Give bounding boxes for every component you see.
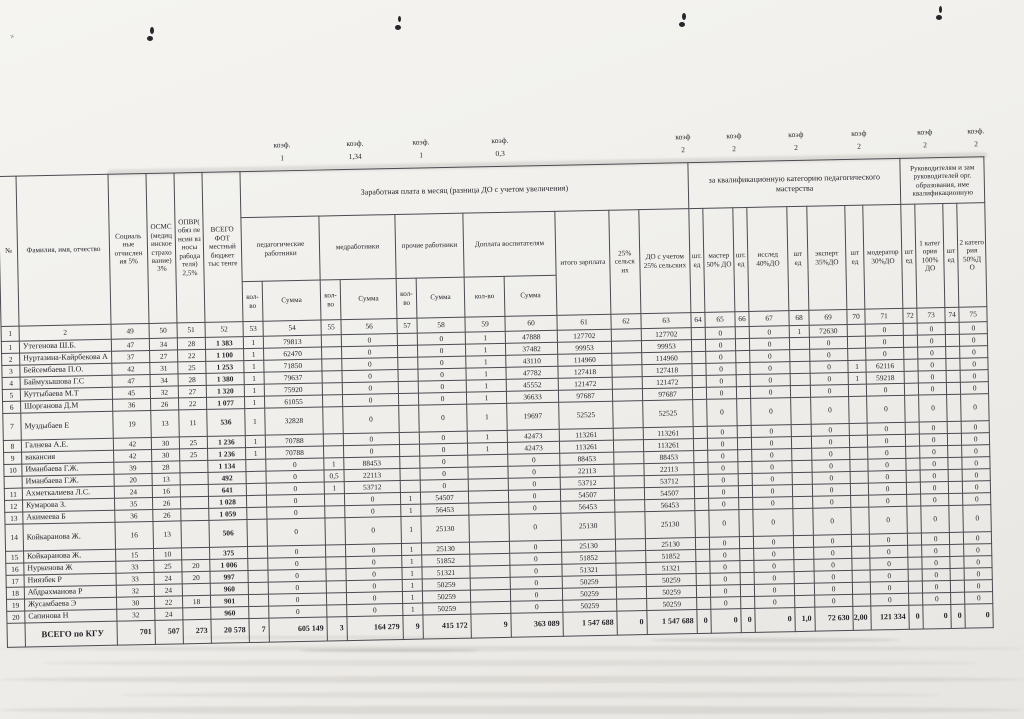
value-cell: 415 172 (423, 614, 471, 639)
value-cell: 0 (709, 498, 739, 511)
value-cell (945, 322, 959, 334)
value-cell (180, 472, 208, 485)
value-cell: 0 (962, 433, 990, 446)
value-cell (326, 581, 346, 593)
value-cell (792, 460, 812, 472)
value-cell (849, 396, 868, 423)
value-cell: 0 (869, 533, 907, 546)
value-cell (947, 421, 961, 433)
value-cell (399, 444, 419, 456)
scan-streak (0, 706, 1024, 714)
header-sht: шт ед (787, 206, 809, 310)
value-cell: 22 (178, 349, 206, 362)
name-cell: Койкаранова Ж. (23, 522, 116, 551)
value-cell: 0 (922, 544, 950, 557)
value-cell: 0 (617, 611, 647, 636)
column-number: 67 (749, 311, 789, 327)
value-cell: 16 (6, 563, 24, 575)
value-cell: 0,5 (324, 470, 344, 482)
value-cell (399, 405, 420, 432)
value-cell (246, 483, 266, 495)
value-cell: 42 (112, 362, 150, 375)
header-fio: Фамилия, имя, отчество (16, 174, 111, 326)
value-cell: 0 (711, 609, 741, 634)
value-cell: 24 (155, 608, 183, 621)
value-cell (247, 519, 268, 546)
value-cell: 0 (510, 564, 562, 577)
value-cell: 0 (420, 479, 468, 492)
value-cell: 1 (324, 482, 344, 494)
value-cell: 1 (467, 403, 508, 431)
value-cell: 0 (960, 358, 988, 371)
value-cell: 0 (961, 394, 990, 422)
value-cell: 0 (343, 405, 400, 433)
value-cell (791, 424, 811, 436)
value-cell (246, 471, 266, 483)
value-cell (469, 541, 509, 554)
header-vospit: Доплата воспитателям (463, 211, 556, 277)
value-cell: 0 (751, 425, 791, 438)
value-cell: 0 (920, 469, 948, 482)
value-cell (692, 387, 706, 399)
value-cell: 7 (249, 618, 269, 642)
value-cell (468, 454, 508, 467)
value-cell: 121 334 (871, 605, 910, 630)
value-cell: 32 (117, 608, 155, 621)
value-cell: 0 (964, 580, 992, 593)
value-cell: 51321 (422, 566, 470, 579)
value-cell: 0 (869, 494, 907, 507)
value-cell: 1 (848, 372, 866, 384)
value-cell: 33 (116, 560, 154, 573)
value-cell: 1 253 (206, 361, 244, 374)
value-cell: 0 (710, 561, 740, 574)
value-cell: 99953 (557, 341, 611, 354)
value-cell (614, 488, 644, 501)
value-cell: 7 (3, 413, 22, 440)
value-cell: 0 (341, 334, 397, 347)
value-cell (904, 335, 918, 347)
value-cell (946, 382, 960, 394)
value-cell (249, 606, 269, 618)
value-cell: 54507 (644, 487, 694, 500)
value-cell: 127702 (641, 328, 691, 341)
value-cell (400, 456, 420, 468)
value-cell: 27 (178, 385, 206, 398)
value-cell: 0 (708, 474, 738, 487)
value-cell (692, 375, 706, 387)
value-cell: 0 (750, 350, 790, 363)
header-med: медработники (319, 215, 396, 281)
value-cell: 0 (867, 434, 905, 447)
value-cell: 25130 (645, 511, 696, 539)
value-cell: 0 (755, 608, 795, 633)
value-cell (736, 362, 750, 374)
header-sht: шт ед (845, 205, 865, 309)
value-cell: 25 (180, 448, 208, 461)
value-cell: 1 (467, 442, 507, 455)
value-cell: 0 (751, 437, 791, 450)
value-cell (469, 502, 509, 515)
value-cell: 50259 (422, 578, 470, 591)
value-cell: 0 (811, 423, 849, 436)
scan-streak (120, 692, 940, 698)
header-moderator: модератор 30%ДО (863, 204, 903, 309)
value-cell (398, 357, 418, 369)
value-cell: 0 (509, 513, 562, 541)
value-cell (906, 434, 920, 446)
value-cell (794, 547, 814, 559)
value-cell (326, 569, 346, 581)
value-cell: 1 (402, 579, 422, 591)
value-cell (696, 561, 710, 573)
value-cell (849, 435, 867, 447)
value-cell (790, 373, 810, 385)
value-cell: 10 (154, 548, 182, 561)
value-cell: 127702 (557, 329, 611, 342)
column-number: 51 (177, 322, 205, 338)
header-social: Социаль ные отчислен ия 5% (108, 174, 149, 325)
header-kolvo: кол-во (320, 280, 341, 320)
value-cell (614, 464, 644, 477)
value-cell (325, 545, 345, 557)
value-cell: 32 (150, 386, 178, 399)
value-cell: 42473 (507, 429, 559, 442)
value-cell: 0 (420, 467, 468, 480)
value-cell (951, 592, 965, 604)
value-cell: 5 (2, 389, 20, 401)
value-cell (908, 557, 922, 569)
value-cell: 1 (848, 360, 866, 372)
value-cell: 1 (245, 408, 266, 435)
header-kolvo: кол-во (242, 281, 263, 321)
coef-label: коэф.1 (399, 138, 443, 159)
value-cell: 0 (868, 482, 906, 495)
value-cell (183, 607, 211, 620)
value-cell: 0 (923, 592, 951, 605)
value-cell: 0 (963, 493, 991, 506)
value-cell: 12 (5, 500, 23, 512)
column-number: 70 (847, 309, 865, 324)
value-cell: 121472 (642, 376, 692, 389)
value-cell: 0 (709, 537, 739, 550)
value-cell: 10 (4, 464, 22, 476)
column-number: 73 (917, 308, 945, 324)
value-cell: 25130 (561, 512, 616, 540)
value-cell (4, 476, 22, 488)
value-cell: 1 (401, 543, 421, 555)
value-cell: 273 (183, 619, 211, 644)
value-cell: 375 (209, 547, 247, 560)
value-cell: 36633 (506, 390, 558, 403)
value-cell (794, 571, 814, 583)
value-cell (398, 393, 418, 405)
value-cell: 0 (753, 536, 793, 549)
value-cell: 0 (813, 534, 851, 547)
value-cell: 0 (417, 332, 465, 345)
value-cell: 0 (918, 335, 946, 348)
value-cell: 25130 (421, 515, 470, 543)
value-cell: 59218 (866, 371, 904, 384)
header-qual-group: за квалификационную категорию педагогиче… (688, 158, 901, 208)
value-cell (790, 349, 810, 361)
value-cell (737, 425, 751, 437)
value-cell: 51852 (562, 551, 616, 564)
value-cell: 15 (6, 551, 24, 563)
value-cell (740, 548, 754, 560)
value-cell: 641 (208, 484, 246, 497)
header-expert: эксперт 35%ДО (807, 206, 847, 311)
header-itogo: итого зарплата (555, 210, 611, 315)
value-cell (906, 470, 920, 482)
value-cell: 0 (868, 446, 906, 459)
value-cell: 0 (960, 346, 988, 359)
value-cell: 0 (508, 477, 560, 490)
value-cell: 0 (961, 421, 989, 434)
value-cell: 507 (155, 620, 183, 645)
header-kateg1: 1 катег ория 100% ДО (915, 204, 945, 309)
column-number: 61 (557, 314, 611, 330)
value-cell: 0 (752, 473, 792, 486)
value-cell: 13 (5, 512, 23, 524)
column-number: 58 (417, 317, 465, 333)
value-cell: 0 (346, 579, 402, 592)
value-cell: 113261 (559, 428, 613, 441)
value-cell (326, 593, 346, 605)
value-cell: 127418 (558, 365, 612, 378)
value-cell (470, 589, 510, 602)
value-cell: 0 (711, 597, 741, 610)
value-cell: 0 (870, 545, 908, 558)
value-cell (946, 358, 960, 370)
value-cell (738, 473, 752, 485)
value-cell: 0 (809, 336, 847, 349)
value-cell: 22113 (560, 464, 614, 477)
value-cell (909, 593, 923, 605)
value-cell (738, 449, 752, 461)
value-cell (908, 569, 922, 581)
value-cell (950, 556, 964, 568)
value-cell: 1 547 688 (647, 610, 698, 635)
value-cell: 127418 (642, 364, 692, 377)
value-cell: 13 (151, 410, 180, 438)
value-cell: 33 (116, 572, 154, 585)
value-cell (248, 558, 268, 570)
value-cell (398, 381, 418, 393)
value-cell: 0 (418, 392, 466, 405)
value-cell: 997 (210, 571, 248, 584)
value-cell: 1 (403, 603, 423, 615)
value-cell: 0 (752, 485, 792, 498)
value-cell: 0 (964, 556, 992, 569)
value-cell: 1 (466, 379, 506, 392)
value-cell (611, 341, 641, 354)
value-cell: 1 006 (210, 559, 248, 572)
header-vsego-fot: ВСЕГО ФОТ местный бюджет тыс тенге (202, 172, 243, 323)
value-cell: 0 (813, 507, 852, 535)
value-cell: 88453 (644, 451, 694, 464)
value-cell: 0 (753, 509, 794, 537)
value-cell: 43110 (506, 354, 558, 367)
value-cell: 54507 (560, 488, 614, 501)
value-cell (904, 359, 918, 371)
value-cell (852, 558, 870, 570)
value-cell (247, 507, 267, 519)
column-number: 68 (789, 310, 809, 325)
value-cell: 22 (154, 596, 182, 609)
value-cell: 0 (755, 596, 795, 609)
value-cell: 0 (866, 383, 904, 396)
value-cell: 20 578 (211, 619, 249, 644)
value-cell (946, 370, 960, 382)
value-cell: 9 (4, 452, 22, 464)
value-cell: 53712 (344, 480, 400, 493)
value-cell: 0 (741, 608, 755, 632)
value-cell: 0 (814, 546, 852, 559)
value-cell (848, 384, 866, 396)
value-cell (470, 577, 510, 590)
value-cell: 0 (870, 557, 908, 570)
value-cell (789, 337, 809, 349)
value-cell: 0 (344, 492, 400, 505)
value-cell: 0 (960, 382, 988, 395)
value-cell: 2,00 (853, 606, 871, 630)
header-summa: Сумма (340, 279, 397, 320)
header-opvr: ОПВР( обяз пе нсии вз носы рабода теля) … (174, 172, 205, 323)
header-issled: исслед 40%ДО (747, 207, 789, 312)
value-cell: 0 (919, 421, 947, 434)
value-cell: 8 (3, 440, 21, 452)
value-cell (793, 508, 814, 535)
header-selsk: 25% сельск их (609, 210, 641, 315)
value-cell: 13 (152, 473, 180, 486)
value-cell: 0 (810, 360, 848, 373)
value-cell: 6 (3, 401, 21, 413)
value-cell: 113261 (643, 427, 693, 440)
value-cell (613, 428, 643, 441)
value-cell: 0 (419, 443, 467, 456)
value-cell: 1 236 (208, 448, 246, 461)
value-cell (697, 597, 711, 609)
value-cell: 39 (114, 461, 152, 474)
value-cell: 0 (923, 604, 951, 629)
value-cell: 99953 (641, 340, 691, 353)
value-cell (740, 584, 754, 596)
value-cell: 0 (509, 501, 561, 514)
value-cell: 0 (752, 449, 792, 462)
value-cell: 0 (710, 585, 740, 598)
value-cell: 0 (342, 394, 398, 407)
value-cell: 0 (920, 481, 948, 494)
value-cell (613, 440, 643, 453)
value-cell: 20 (182, 571, 210, 584)
value-cell: 0 (868, 458, 906, 471)
value-cell: 34 (149, 338, 177, 351)
coef-label: коэф.0,3 (478, 136, 522, 157)
value-cell: 18 (6, 587, 24, 599)
value-cell (736, 386, 750, 398)
value-cell (792, 472, 812, 484)
value-cell (400, 480, 420, 492)
value-cell (850, 471, 868, 483)
value-cell (790, 361, 810, 373)
value-cell (739, 497, 753, 509)
value-cell (740, 560, 754, 572)
value-cell (737, 437, 751, 449)
value-cell (324, 494, 344, 506)
value-cell: 22 (178, 397, 206, 410)
value-cell: 0 (870, 569, 908, 582)
value-cell: 11 (179, 409, 208, 437)
value-cell: 1 (244, 348, 264, 360)
value-cell: 0 (871, 593, 909, 606)
value-cell: 0 (751, 398, 792, 426)
value-cell: 0 (962, 457, 990, 470)
value-cell: 0 (511, 600, 563, 613)
value-cell: 1 028 (208, 496, 246, 509)
value-cell (851, 534, 869, 546)
value-cell (908, 581, 922, 593)
value-cell: 1,0 (795, 607, 815, 631)
value-cell: 4 (2, 377, 20, 389)
value-cell (691, 339, 705, 351)
value-cell (852, 570, 870, 582)
name-cell: ВСЕГО по КГУ (25, 621, 117, 647)
value-cell: 42473 (507, 441, 559, 454)
value-cell: 0 (814, 570, 852, 583)
value-cell (852, 582, 870, 594)
value-cell: 47888 (505, 330, 557, 343)
value-cell: 0 (919, 383, 947, 396)
value-cell: 56453 (421, 503, 469, 516)
value-cell (693, 426, 707, 438)
value-cell: 27 (150, 350, 178, 363)
value-cell: 0 (918, 347, 946, 360)
value-cell: 0 (346, 567, 402, 580)
value-cell: 0 (754, 560, 794, 573)
value-cell (905, 395, 920, 422)
value-cell (853, 594, 871, 606)
value-cell: 50259 (563, 599, 617, 612)
value-cell: 0 (752, 461, 792, 474)
column-number: 49 (111, 323, 149, 339)
value-cell: 51321 (562, 563, 616, 576)
column-number: 1 (1, 326, 19, 341)
value-cell: 1 (1, 341, 19, 353)
value-cell: 1 077 (206, 397, 244, 410)
value-cell (852, 546, 870, 558)
value-cell: 1 383 (205, 337, 243, 350)
header-kateg2: 2 катего рия 50%Д О (957, 203, 987, 308)
value-cell (399, 432, 419, 444)
value-cell: 25 (154, 560, 182, 573)
value-cell: 960 (211, 607, 249, 620)
column-number: 54 (263, 320, 321, 336)
value-cell: 50259 (562, 575, 616, 588)
value-cell: 0 (918, 371, 946, 384)
value-cell: 0 (867, 395, 906, 423)
value-cell: 3 (2, 365, 20, 377)
value-cell: 28 (177, 337, 205, 350)
value-cell: 0 (810, 348, 848, 361)
value-cell: 0 (709, 510, 740, 538)
value-cell: 0 (811, 435, 849, 448)
value-cell (248, 594, 268, 606)
value-cell (735, 338, 749, 350)
value-cell (616, 563, 646, 576)
value-cell: 0 (510, 588, 562, 601)
value-cell: 0 (706, 351, 736, 364)
